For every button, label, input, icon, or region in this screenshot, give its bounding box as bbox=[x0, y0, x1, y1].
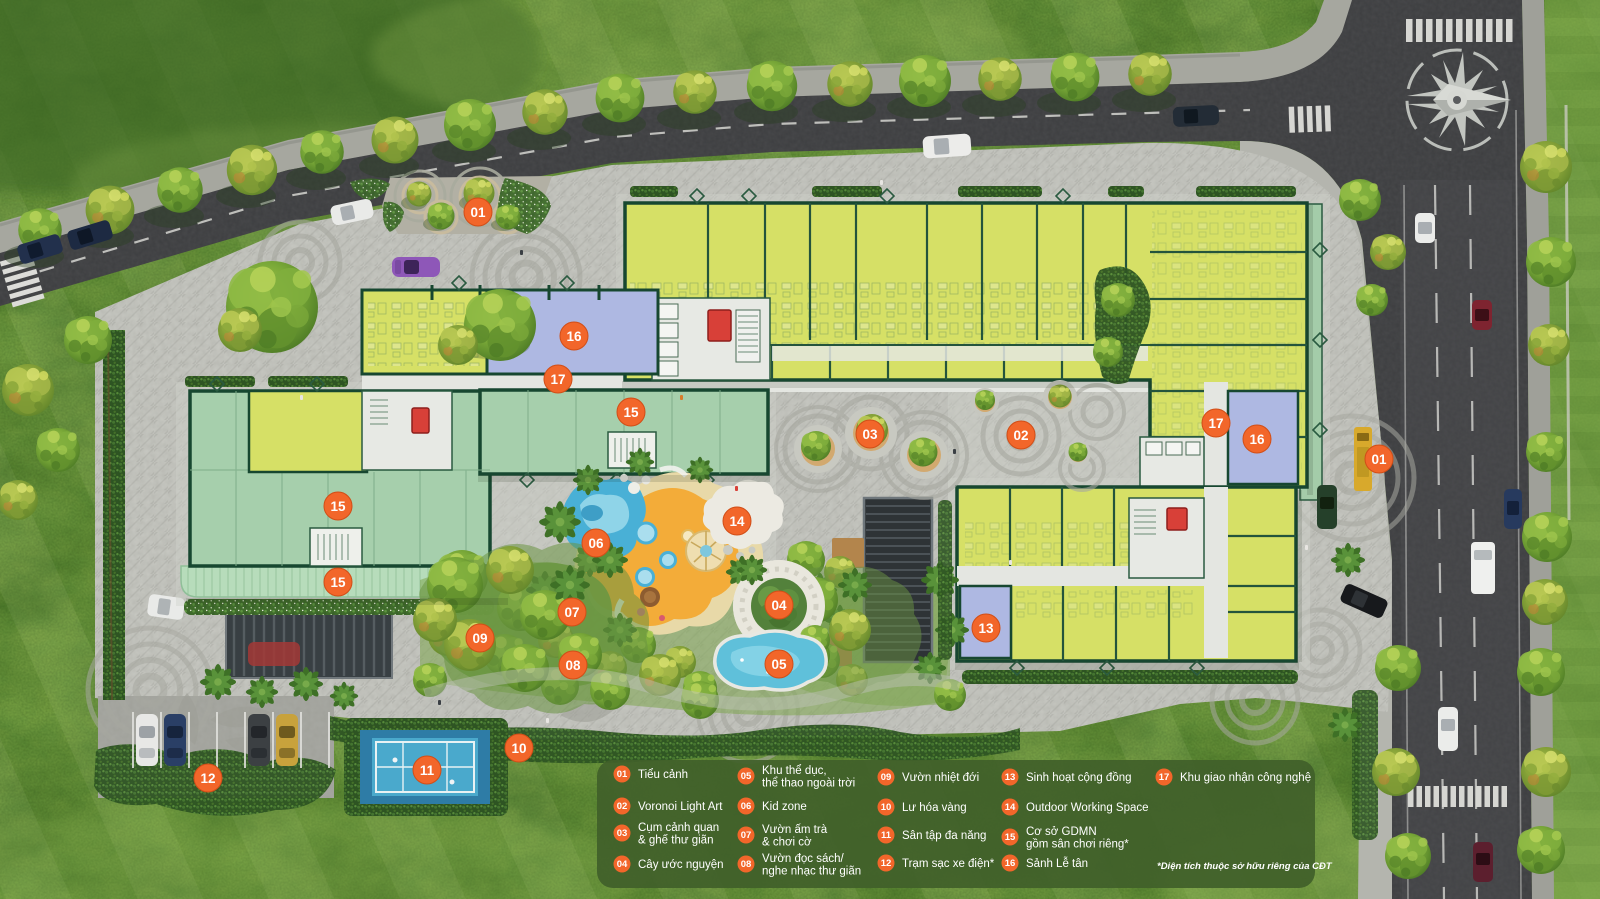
svg-text:gồm sân chơi riêng*: gồm sân chơi riêng* bbox=[1026, 839, 1129, 851]
svg-text:12: 12 bbox=[200, 771, 215, 786]
svg-text:14: 14 bbox=[729, 514, 745, 529]
svg-text:Outdoor Working Space: Outdoor Working Space bbox=[1026, 802, 1149, 814]
svg-text:03: 03 bbox=[862, 427, 878, 442]
svg-text:01: 01 bbox=[617, 769, 628, 780]
svg-text:08: 08 bbox=[741, 859, 752, 870]
svg-text:15: 15 bbox=[330, 499, 346, 514]
svg-text:Vườn ấm trà: Vườn ấm trà bbox=[762, 824, 828, 836]
svg-text:17: 17 bbox=[1208, 416, 1223, 431]
svg-text:06: 06 bbox=[588, 536, 604, 551]
svg-text:nghe nhạc thư giãn: nghe nhạc thư giãn bbox=[762, 866, 861, 878]
svg-text:12: 12 bbox=[881, 858, 892, 869]
svg-text:Voronoi Light Art: Voronoi Light Art bbox=[638, 801, 723, 813]
svg-text:Vườn nhiệt đới: Vườn nhiệt đới bbox=[902, 772, 979, 784]
svg-text:10: 10 bbox=[881, 802, 892, 813]
svg-text:08: 08 bbox=[565, 658, 581, 673]
svg-text:Sinh hoạt cộng đồng: Sinh hoạt cộng đồng bbox=[1026, 772, 1132, 784]
svg-text:10: 10 bbox=[511, 741, 526, 756]
svg-text:Khu thể dục,: Khu thể dục, bbox=[762, 765, 827, 777]
svg-text:Trạm sạc xe điện*: Trạm sạc xe điện* bbox=[902, 858, 995, 870]
svg-text:Vườn đọc sách/: Vườn đọc sách/ bbox=[762, 853, 845, 865]
svg-text:Sân tập đa năng: Sân tập đa năng bbox=[902, 830, 986, 842]
svg-text:Khu giao nhận công nghệ: Khu giao nhận công nghệ bbox=[1180, 772, 1311, 784]
svg-text:03: 03 bbox=[617, 828, 628, 839]
svg-text:04: 04 bbox=[617, 859, 628, 870]
svg-text:*Diện tích thuộc sở hữu riêng: *Diện tích thuộc sở hữu riêng của CĐT bbox=[1157, 861, 1333, 872]
svg-text:16: 16 bbox=[1249, 432, 1265, 447]
svg-text:05: 05 bbox=[741, 771, 752, 782]
svg-text:13: 13 bbox=[1005, 772, 1016, 783]
svg-text:07: 07 bbox=[564, 605, 579, 620]
svg-text:11: 11 bbox=[881, 830, 892, 841]
svg-text:Kid zone: Kid zone bbox=[762, 801, 807, 813]
svg-text:17: 17 bbox=[1159, 772, 1170, 783]
svg-text:01: 01 bbox=[1371, 452, 1387, 467]
svg-text:04: 04 bbox=[771, 598, 787, 613]
svg-text:& ghế thư giãn: & ghế thư giãn bbox=[638, 835, 713, 847]
svg-text:Sảnh Lễ tân: Sảnh Lễ tân bbox=[1026, 857, 1088, 870]
svg-text:02: 02 bbox=[617, 801, 628, 812]
svg-text:Cơ sở GDMN: Cơ sở GDMN bbox=[1026, 826, 1097, 838]
svg-text:Cụm cảnh quan: Cụm cảnh quan bbox=[638, 822, 719, 834]
svg-text:17: 17 bbox=[550, 372, 565, 387]
svg-text:15: 15 bbox=[623, 405, 639, 420]
svg-text:15: 15 bbox=[1005, 832, 1016, 843]
svg-text:07: 07 bbox=[741, 830, 752, 841]
svg-text:Cây ước nguyện: Cây ước nguyện bbox=[638, 859, 724, 871]
svg-text:14: 14 bbox=[1005, 802, 1016, 813]
svg-text:09: 09 bbox=[472, 631, 487, 646]
svg-text:11: 11 bbox=[420, 763, 435, 778]
svg-text:& chơi cờ: & chơi cờ bbox=[762, 837, 812, 849]
svg-text:thể thao ngoài trời: thể thao ngoài trời bbox=[762, 778, 855, 790]
svg-text:09: 09 bbox=[881, 772, 892, 783]
svg-text:02: 02 bbox=[1013, 428, 1028, 443]
svg-text:05: 05 bbox=[771, 657, 787, 672]
svg-text:06: 06 bbox=[741, 801, 752, 812]
svg-text:16: 16 bbox=[566, 329, 582, 344]
svg-text:15: 15 bbox=[330, 575, 346, 590]
svg-text:13: 13 bbox=[978, 621, 994, 636]
svg-text:Lư hóa vàng: Lư hóa vàng bbox=[902, 802, 967, 814]
svg-text:Tiểu cảnh: Tiểu cảnh bbox=[638, 769, 688, 781]
svg-text:01: 01 bbox=[470, 205, 486, 220]
svg-text:16: 16 bbox=[1005, 858, 1016, 869]
